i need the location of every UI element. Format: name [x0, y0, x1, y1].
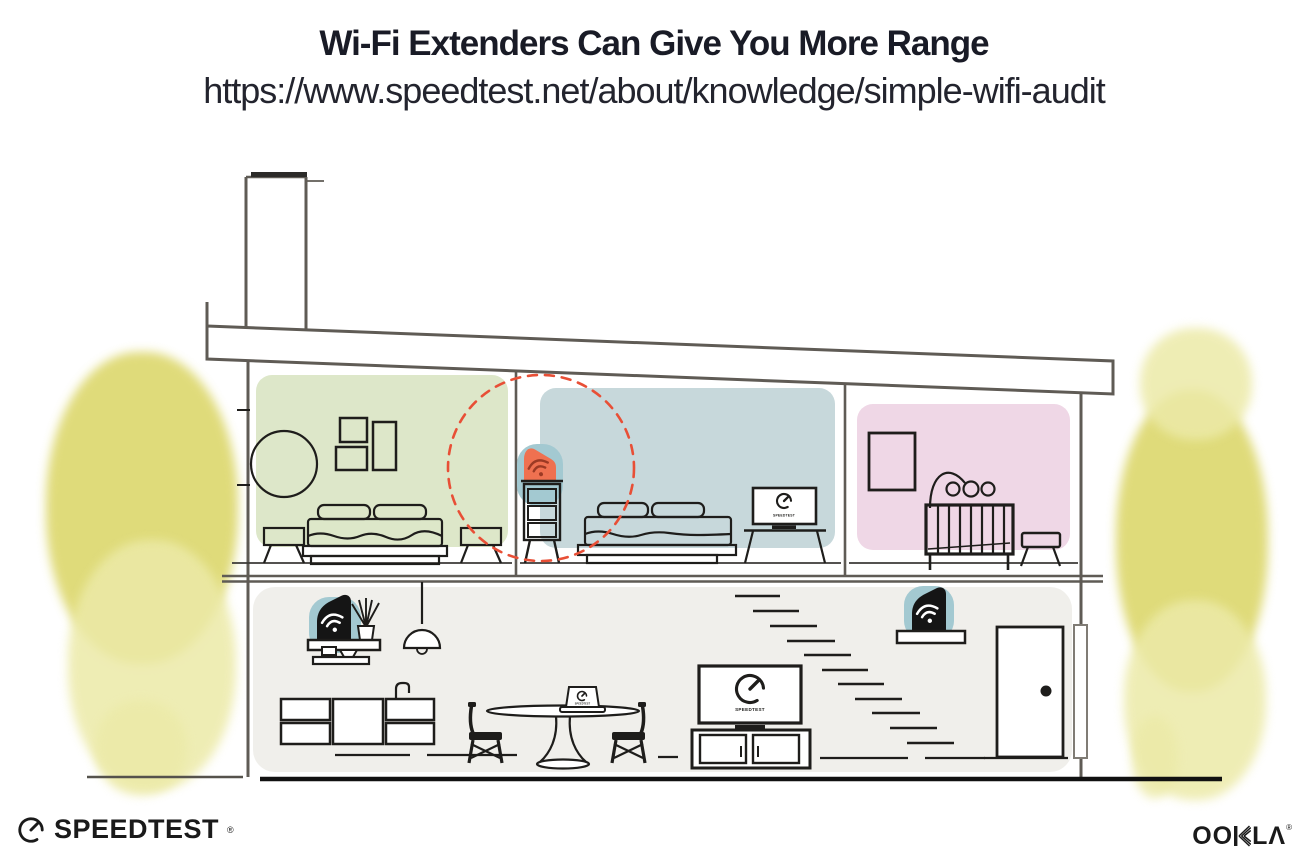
laptop: SPEEDTEST: [560, 687, 605, 712]
front-door: [984, 627, 1068, 758]
bed: [303, 505, 447, 564]
bedroom-tv-label: SPEEDTEST: [773, 514, 796, 518]
round-mirror: [251, 431, 317, 497]
house-line-art: SPEEDTEST: [0, 0, 1308, 861]
downspout: [1074, 625, 1087, 758]
faucet: [396, 683, 409, 699]
bedroom-tv: SPEEDTEST: [744, 488, 826, 563]
bed: [578, 503, 736, 563]
roof: [207, 302, 1113, 394]
living-tv-label: SPEEDTEST: [735, 707, 765, 712]
living-tv: SPEEDTEST: [699, 666, 801, 729]
pendant-lamp: [404, 582, 440, 654]
crib-mobile: [930, 473, 995, 508]
kitchen-cabinets: [281, 699, 434, 744]
nightstand: [461, 528, 501, 563]
picture-frames: [336, 418, 396, 470]
nightstand: [264, 528, 304, 563]
floor-accent-lines: [335, 755, 985, 758]
media-console: [692, 730, 810, 768]
door-knob: [1041, 686, 1052, 697]
bedroom-green: [251, 418, 501, 564]
picture-frame: [869, 433, 915, 490]
chimney: [246, 172, 324, 330]
bedroom-blue: SPEEDTEST: [517, 444, 826, 563]
nursery: [869, 433, 1060, 570]
living-floor: SPEEDTEST SPEEDTEST: [281, 582, 1068, 769]
wall-shelf: [308, 640, 380, 650]
stair-shelf: [897, 631, 965, 643]
stool: [1021, 533, 1060, 566]
infographic-canvas: Wi-Fi Extenders Can Give You More Range …: [0, 0, 1308, 861]
chimney-cap: [251, 172, 307, 177]
laptop-label: SPEEDTEST: [575, 703, 591, 706]
crib: [926, 505, 1013, 570]
